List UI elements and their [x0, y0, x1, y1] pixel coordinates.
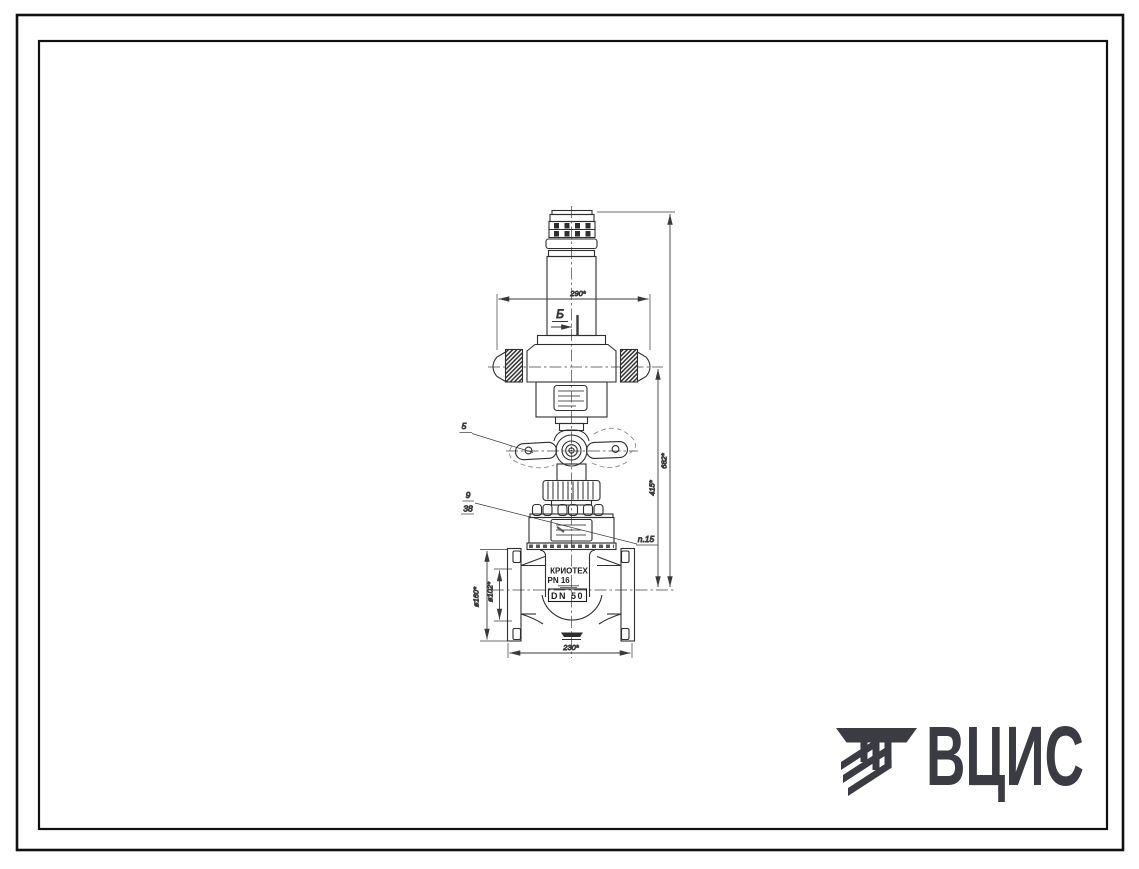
dim-flange-span: 230* — [562, 643, 580, 652]
dim-raised-face: ø102* — [486, 581, 495, 602]
callout-item38: 38 — [463, 504, 473, 514]
bonnet — [527, 505, 616, 550]
vcis-logo-icon — [836, 728, 917, 796]
handle-assembly — [509, 428, 635, 505]
callout-handle: 5 — [462, 421, 467, 431]
dn-rating: DN 50 — [551, 591, 584, 601]
body-markings: КРИОТЕХ PN 16 DN 50 — [548, 567, 589, 602]
pn-rating: PN 16 — [548, 576, 571, 585]
callout-item15: n.15 — [638, 534, 655, 544]
dim-width-top: 290* — [569, 289, 587, 298]
vcis-logo-text: ВЦИС — [926, 714, 1084, 798]
dim-height-total: 682* — [660, 452, 669, 469]
dim-flange-od: ø160* — [472, 586, 481, 607]
section-marker: Б — [556, 307, 564, 321]
drawing-sheet: КРИОТЕХ PN 16 DN 50 290* Б 682* 415* ø16… — [0, 0, 1139, 869]
upper-nameplate — [554, 386, 587, 411]
handle-right-lobe — [586, 441, 628, 458]
left-knurled-nut — [506, 350, 523, 383]
drain-boss — [561, 633, 583, 638]
brand-text: КРИОТЕХ — [550, 567, 588, 576]
dim-height-mid: 415* — [648, 479, 657, 496]
right-knurled-nut — [621, 350, 638, 383]
callout-item9: 9 — [466, 490, 471, 500]
